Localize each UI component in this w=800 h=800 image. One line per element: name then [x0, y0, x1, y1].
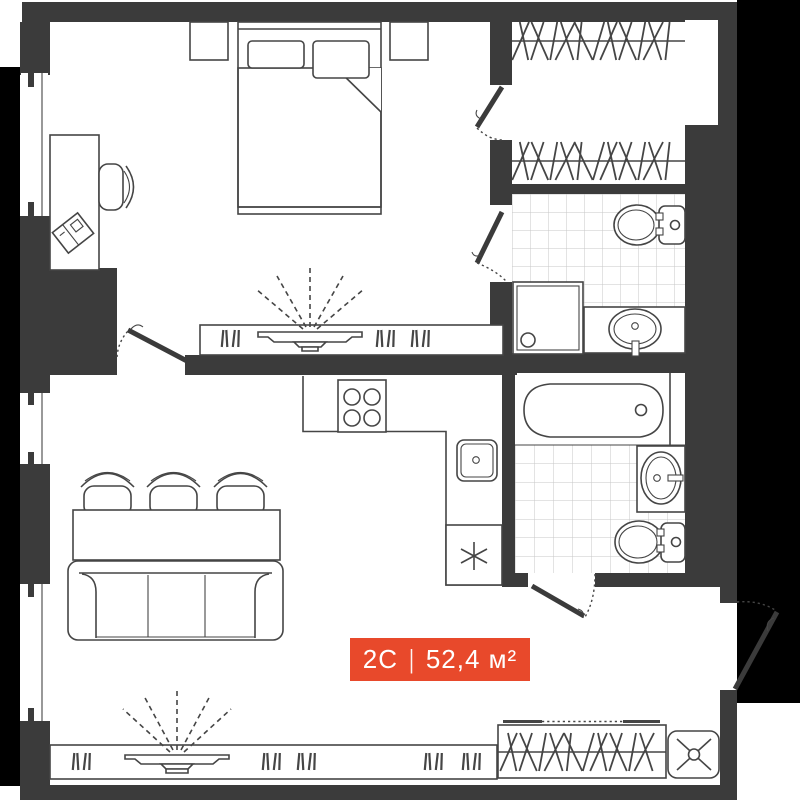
closet-door: [476, 87, 503, 140]
washing-machine: [668, 731, 719, 778]
unit-type: 2С: [363, 644, 398, 675]
dining-table-group: [73, 473, 280, 561]
sofa: [68, 561, 283, 640]
faucet: [632, 341, 639, 356]
bedroom: [50, 22, 503, 361]
window-bedroom: [21, 73, 48, 216]
kitchen-sink: [457, 440, 497, 481]
shower-tray: [513, 282, 583, 354]
outside-right: [737, 0, 800, 703]
dining-table: [73, 510, 280, 560]
stove: [338, 380, 386, 432]
bed: [238, 22, 381, 214]
sink-counter: [584, 307, 685, 356]
pillow: [313, 41, 369, 78]
toilet: [615, 521, 685, 563]
nightstand-left: [190, 22, 228, 60]
wardrobe: [498, 722, 666, 779]
desk-chair: [99, 164, 134, 210]
nightstand-right: [390, 22, 428, 60]
outside-left: [0, 67, 20, 786]
bathroom-door-opening: [528, 573, 595, 587]
faucet: [668, 475, 683, 481]
floor-plan: 2С | 52,4 м²: [0, 0, 800, 800]
toilet: [614, 205, 685, 245]
window-living-1: [21, 393, 48, 464]
bathroom-shower-door: [472, 212, 506, 281]
unit-area: 52,4 м²: [426, 644, 517, 675]
tv-projection-rays: [256, 268, 364, 329]
window-living-2: [21, 584, 48, 721]
bathtub: [524, 384, 663, 437]
tv-stand-bedroom: [200, 268, 503, 355]
shaft-notch: [685, 20, 718, 125]
area-badge: 2С | 52,4 м²: [350, 638, 530, 681]
tv-stand-living: [50, 688, 497, 779]
pillow: [248, 41, 304, 68]
tv-projection-rays: [123, 688, 231, 752]
kitchen: [303, 376, 502, 585]
bedroom-door: [117, 325, 187, 361]
badge-divider: |: [409, 644, 414, 675]
entrance-door-opening: [720, 603, 737, 690]
fridge: [446, 525, 502, 585]
desk: [50, 135, 99, 270]
sink-counter: [637, 446, 685, 512]
